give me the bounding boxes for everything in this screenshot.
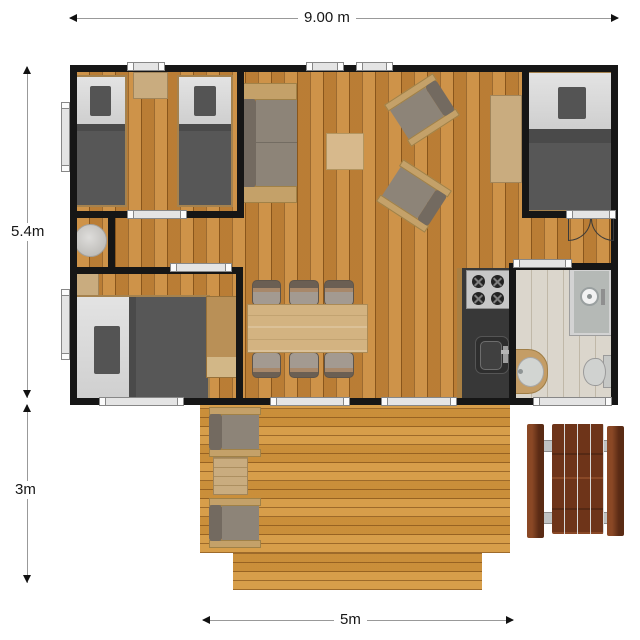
dimension-arrow-terrace-width-left: [202, 616, 210, 624]
toilet-bowl: [583, 358, 606, 386]
dimension-label-width: 9.00 m: [298, 9, 356, 27]
terrace-chair-top-frame-b: [209, 449, 261, 457]
shower-handle: [601, 289, 605, 305]
floor-plan-canvas: 9.00 m 5.4m 3m 5m: [0, 0, 640, 640]
exterior-wall-left: [70, 65, 77, 405]
terrace-chair-top: [209, 407, 261, 457]
window-bathroom: [534, 397, 611, 406]
sofa-armrest-top: [242, 83, 297, 100]
dimension-arrow-width-left: [69, 14, 77, 22]
hob-burner-3: [472, 292, 485, 305]
dimension-arrow-terrace-depth-top: [23, 404, 31, 412]
wall-twin-bedroom-right: [237, 65, 244, 218]
bed-foot-shelf: [207, 357, 236, 377]
sliding-door-terrace-1: [271, 397, 349, 406]
wall-bathroom-left: [509, 263, 516, 405]
double-bed-left-pillow: [94, 326, 120, 374]
shower: [569, 266, 612, 336]
single-bed-left: [74, 75, 127, 207]
shower-drain-dot: [587, 294, 592, 299]
dining-table: [247, 304, 368, 353]
kitchen-sink-basin: [480, 341, 502, 370]
dimension-arrow-depth-bottom: [23, 390, 31, 398]
washbasin-vanity: [514, 349, 548, 394]
hob-burner-4: [491, 292, 504, 305]
single-bed-right-pillow: [194, 86, 216, 116]
sofa-seat-divider: [256, 142, 297, 143]
door-right-bedroom: [567, 210, 615, 219]
terrace-side-table: [213, 457, 248, 495]
round-pouf: [74, 224, 107, 257]
kitchen-faucet: [503, 346, 508, 363]
dining-chair-top-3: [324, 280, 354, 306]
dining-chair-bottom-3: [324, 352, 354, 378]
terrace-deck-step: [233, 553, 482, 590]
hob-burner-1: [472, 275, 485, 288]
single-bed-right: [177, 75, 233, 207]
double-bed-right-pillow: [558, 87, 586, 119]
dimension-label-terrace-depth: 3m: [9, 481, 42, 499]
terrace-chair-top-seat: [222, 415, 259, 449]
picnic-table-top: [552, 424, 604, 534]
sliding-door-twin-bedroom: [128, 210, 186, 219]
sliding-door-bathroom: [514, 259, 571, 268]
washbasin-faucet: [518, 369, 523, 374]
wall-right-bedroom-left: [522, 65, 529, 218]
single-bed-left-pillow: [90, 86, 111, 116]
single-bed-left-fold: [76, 124, 125, 131]
terrace-chair-bottom: [209, 498, 261, 548]
dining-chair-bottom-1: [252, 352, 281, 378]
wall-left-bedroom-right: [236, 267, 243, 405]
sofa-armrest-bottom: [242, 186, 297, 203]
dimension-label-terrace-width: 5m: [334, 611, 367, 629]
sofa-seat: [256, 100, 297, 186]
dimension-arrow-terrace-width-right: [506, 616, 514, 624]
window-left-double-bedroom: [61, 290, 70, 359]
double-bed-left: [73, 295, 210, 403]
window-top-twin-bedroom: [128, 62, 164, 71]
dimension-label-depth: 5.4m: [5, 223, 50, 241]
window-left-twin-bedroom: [61, 103, 70, 171]
shower-drain: [580, 287, 599, 306]
double-bed-right: [527, 71, 615, 212]
window-top-living-2: [357, 62, 392, 71]
sliding-door-left-bedroom: [171, 263, 231, 272]
bedside-table-twin: [133, 72, 168, 99]
console-table: [490, 95, 522, 183]
hob-burner-2: [491, 275, 504, 288]
terrace-chair-top-backrest: [209, 414, 222, 450]
coffee-table: [326, 133, 364, 170]
terrace-chair-bottom-backrest: [209, 505, 222, 541]
dimension-arrow-depth-top: [23, 66, 31, 74]
dimension-arrow-width-right: [611, 14, 619, 22]
window-top-living-1: [307, 62, 343, 71]
kitchen-sink: [475, 336, 509, 374]
sliding-door-terrace-2: [382, 397, 456, 406]
terrace-chair-bottom-seat: [222, 506, 259, 540]
dining-chair-top-1: [252, 280, 281, 306]
sofa: [242, 83, 297, 203]
double-bed-left-fold: [129, 297, 136, 401]
single-bed-right-fold: [179, 124, 231, 131]
dining-chair-top-2: [289, 280, 319, 306]
double-bed-right-fold: [529, 129, 613, 143]
hob: [466, 270, 510, 309]
picnic-bench-right: [607, 426, 624, 536]
terrace-chair-bottom-frame-b: [209, 540, 261, 548]
picnic-bench-left: [527, 424, 544, 538]
dining-chair-bottom-2: [289, 352, 319, 378]
sofa-backrest: [242, 99, 256, 187]
wall-nook: [108, 211, 115, 274]
dimension-arrow-terrace-depth-bottom: [23, 575, 31, 583]
door-bottom-left-bedroom: [100, 397, 183, 406]
